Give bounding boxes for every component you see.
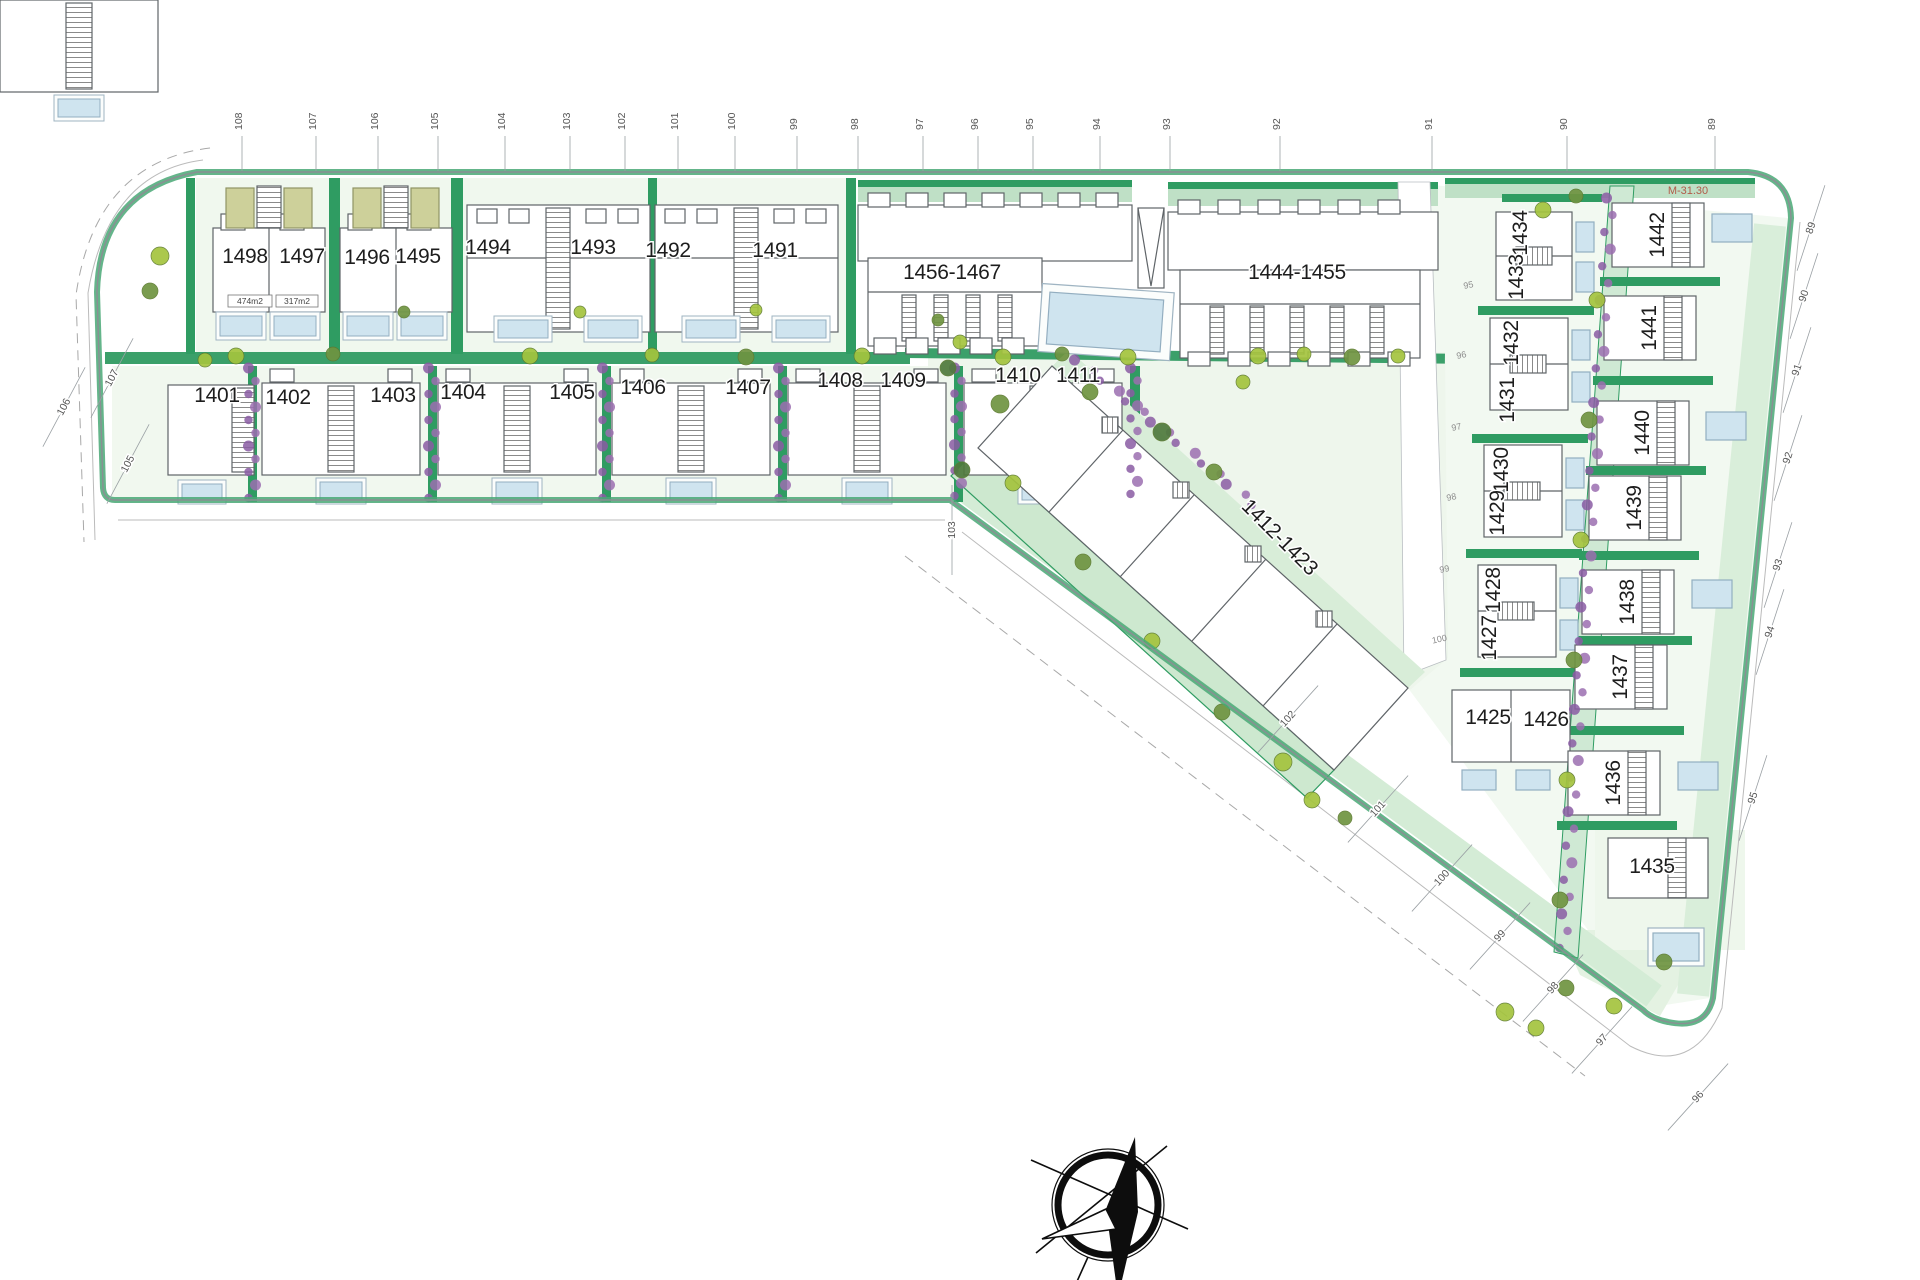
tick-label: 89 xyxy=(1803,220,1818,235)
tick-label: 106 xyxy=(55,396,74,417)
tick-label: 94 xyxy=(1762,624,1777,639)
shrub xyxy=(1585,586,1593,594)
shrub xyxy=(1582,499,1593,510)
tick-label: 90 xyxy=(1796,288,1811,303)
shrub xyxy=(1121,397,1129,405)
plot-label-1442: 1442 xyxy=(1646,212,1669,258)
shrub xyxy=(1587,432,1595,440)
plot-label-1492: 1492 xyxy=(645,239,691,262)
site-plan-page: 1081071061051041031021011009998979695949… xyxy=(0,0,1920,1280)
shrub xyxy=(431,429,439,437)
shrub xyxy=(250,402,261,413)
tree-icon xyxy=(1304,792,1320,808)
tree-icon xyxy=(954,462,970,478)
shrub xyxy=(1578,688,1586,696)
plot-label-1408: 1408 xyxy=(817,369,863,392)
shrub xyxy=(950,389,958,397)
tree-icon xyxy=(574,306,586,318)
plot-label-1431: 1431 xyxy=(1496,377,1519,423)
shrub xyxy=(1576,722,1584,730)
plot-label-1456-1467: 1456-1467 xyxy=(903,261,1001,284)
tree-icon xyxy=(1338,811,1352,825)
shrub xyxy=(1602,313,1610,321)
shrub xyxy=(431,377,439,385)
plot-label-1403: 1403 xyxy=(370,384,416,407)
plot-label-1425: 1425 xyxy=(1465,706,1511,729)
tick-label: 95 xyxy=(1745,790,1760,805)
shrub xyxy=(1601,193,1612,204)
shrub xyxy=(1592,448,1603,459)
tree-icon xyxy=(1274,753,1292,771)
tick-label: 105 xyxy=(429,112,441,130)
tree-icon xyxy=(198,353,212,367)
shrub xyxy=(1575,637,1583,645)
shrub xyxy=(244,416,252,424)
plot-label-1429: 1429 xyxy=(1486,490,1509,536)
plot-label-1430: 1430 xyxy=(1490,447,1513,493)
shrub xyxy=(1562,842,1570,850)
area-label-317: 317m2 xyxy=(284,296,310,306)
plot-label-1441: 1441 xyxy=(1638,305,1661,351)
shrub xyxy=(604,480,615,491)
shrub xyxy=(1221,479,1232,490)
tree-icon xyxy=(151,247,169,265)
road-station-label: 96 xyxy=(1455,349,1467,361)
road-station-label: 95 xyxy=(1462,279,1474,291)
tick-label: 95 xyxy=(1024,118,1036,130)
shrub xyxy=(780,402,791,413)
shrub xyxy=(1583,620,1591,628)
shrub xyxy=(423,363,434,374)
shrub xyxy=(1566,857,1577,868)
shrub xyxy=(1126,465,1134,473)
shrub xyxy=(1126,414,1134,422)
plot-label-1426: 1426 xyxy=(1523,708,1569,731)
shrub xyxy=(1114,386,1125,397)
tick-label: 97 xyxy=(1594,1032,1611,1049)
tree-icon xyxy=(398,306,410,318)
shrub xyxy=(597,441,608,452)
shrub xyxy=(773,363,784,374)
shrub xyxy=(1598,346,1609,357)
villa-pair-building xyxy=(0,0,158,121)
tree-icon xyxy=(1391,349,1405,363)
north-arrow-icon xyxy=(1031,1137,1188,1280)
tick-label: 94 xyxy=(1091,118,1103,130)
tree-icon xyxy=(326,347,340,361)
shrub xyxy=(950,415,958,423)
shrub xyxy=(1141,408,1149,416)
plot-label-1439: 1439 xyxy=(1623,485,1646,531)
tree-icon xyxy=(1581,412,1597,428)
shrub xyxy=(781,455,789,463)
shrub xyxy=(431,455,439,463)
tick-label: 98 xyxy=(849,118,861,130)
road-station-label: 97 xyxy=(1450,421,1462,433)
tick-label: 89 xyxy=(1706,118,1718,130)
shrub xyxy=(956,478,967,489)
plot-label-1434: 1434 xyxy=(1509,210,1532,256)
area-label-474: 474m2 xyxy=(237,296,263,306)
shrub xyxy=(780,480,791,491)
shrub xyxy=(605,377,613,385)
plot-label-1496: 1496 xyxy=(344,246,390,269)
plot-label-1498: 1498 xyxy=(222,245,268,268)
shrub xyxy=(1604,279,1612,287)
shrub xyxy=(1594,330,1602,338)
plot-label-1411: 1411 xyxy=(1056,364,1100,387)
tree-icon xyxy=(932,314,944,326)
plot-label-1433: 1433 xyxy=(1505,254,1528,300)
plot-label-1402: 1402 xyxy=(265,386,311,409)
shrub xyxy=(251,377,259,385)
shrub xyxy=(598,416,606,424)
tree-icon xyxy=(995,349,1011,365)
villa-pair-building xyxy=(467,205,650,342)
tree-icon xyxy=(228,348,244,364)
tree-icon xyxy=(1055,347,1069,361)
road-station-label: 99 xyxy=(1438,563,1450,575)
shrub xyxy=(1560,876,1568,884)
tick-label: 92 xyxy=(1271,118,1283,130)
shrub xyxy=(604,402,615,413)
shrub xyxy=(774,416,782,424)
shrub xyxy=(773,441,784,452)
shrub xyxy=(1572,671,1580,679)
plot-label-1437: 1437 xyxy=(1609,654,1632,700)
shrub xyxy=(605,429,613,437)
shrub xyxy=(423,441,434,452)
shrub xyxy=(244,468,252,476)
shrub xyxy=(956,401,967,412)
shrub xyxy=(1563,927,1571,935)
tick-label: 93 xyxy=(1770,557,1785,572)
tree-icon xyxy=(645,348,659,362)
tree-icon xyxy=(1589,292,1605,308)
tree-icon xyxy=(1297,347,1311,361)
plot-label-1407: 1407 xyxy=(725,376,771,399)
tree-icon xyxy=(1120,349,1136,365)
plot-label-1491: 1491 xyxy=(752,239,798,262)
shrub xyxy=(1133,427,1141,435)
shrub xyxy=(1575,602,1586,613)
shrub xyxy=(1598,262,1606,270)
tree-icon xyxy=(1566,652,1582,668)
shrub xyxy=(781,377,789,385)
shrub xyxy=(1171,439,1179,447)
plot-label-1440: 1440 xyxy=(1631,410,1654,456)
tree-icon xyxy=(1250,348,1266,364)
tick-label: 101 xyxy=(669,112,681,130)
shrub xyxy=(1145,417,1156,428)
shrub xyxy=(598,390,606,398)
tick-label: 91 xyxy=(1789,362,1804,377)
tick-label: 97 xyxy=(914,118,926,130)
tree-icon xyxy=(1606,998,1622,1014)
shrub xyxy=(1586,550,1597,561)
tick-label: 93 xyxy=(1161,118,1173,130)
shrub xyxy=(1589,518,1597,526)
plot-label-1401: 1401 xyxy=(194,384,240,407)
shrub xyxy=(781,429,789,437)
shrub xyxy=(1570,824,1578,832)
plot-label-1406: 1406 xyxy=(620,376,666,399)
tree-icon xyxy=(854,348,870,364)
tick-label: 103 xyxy=(561,112,573,130)
tree-icon xyxy=(1236,375,1250,389)
tick-label: 108 xyxy=(233,112,245,130)
shrub xyxy=(244,390,252,398)
shrub xyxy=(1591,484,1599,492)
shrub xyxy=(243,441,254,452)
tick-label: 107 xyxy=(307,112,319,130)
tree-icon xyxy=(1206,464,1222,480)
shrub xyxy=(430,480,441,491)
shrub xyxy=(774,468,782,476)
shrub xyxy=(250,480,261,491)
tree-icon xyxy=(991,395,1009,413)
shrub xyxy=(1132,476,1143,487)
shrub xyxy=(424,468,432,476)
tree-icon xyxy=(953,335,967,349)
tick-label: 100 xyxy=(726,112,738,130)
plot-label-1444-1455: 1444-1455 xyxy=(1248,261,1346,284)
plot-label-1404: 1404 xyxy=(440,381,486,404)
shrub xyxy=(1563,806,1574,817)
shrub xyxy=(251,429,259,437)
shrub xyxy=(1585,467,1593,475)
plot-label-1405: 1405 xyxy=(549,381,595,404)
tick-label: 92 xyxy=(1780,450,1795,465)
shrub xyxy=(1608,211,1616,219)
tree-icon xyxy=(1535,202,1551,218)
shrub xyxy=(1126,490,1134,498)
tree-icon xyxy=(1344,349,1360,365)
shrub xyxy=(424,390,432,398)
tree-icon xyxy=(1569,189,1583,203)
tree-icon xyxy=(1528,1020,1544,1036)
tick-label: 96 xyxy=(969,118,981,130)
tick-label: 103 xyxy=(946,521,958,539)
tick-label: 90 xyxy=(1558,118,1570,130)
shrub xyxy=(1579,569,1587,577)
shrub xyxy=(957,377,965,385)
plot-label-1436: 1436 xyxy=(1602,760,1625,806)
shrub xyxy=(1588,397,1599,408)
shrub xyxy=(1190,448,1201,459)
tick-label: 106 xyxy=(369,112,381,130)
tree-icon xyxy=(1153,423,1171,441)
tree-icon xyxy=(1075,554,1091,570)
shrub xyxy=(1242,490,1250,498)
shrub xyxy=(1197,459,1205,467)
shrub xyxy=(1125,438,1136,449)
plot-label-1493: 1493 xyxy=(570,236,616,259)
plot-label-1427: 1427 xyxy=(1478,615,1501,661)
shrub xyxy=(1568,739,1576,747)
villa-pair-building xyxy=(655,205,838,342)
plot-label-1494: 1494 xyxy=(465,236,511,259)
shrub xyxy=(1573,755,1584,766)
shrub xyxy=(1592,364,1600,372)
shrub xyxy=(243,363,254,374)
shrub xyxy=(597,363,608,374)
shrub xyxy=(1605,244,1616,255)
tree-icon xyxy=(522,348,538,364)
road-reference-label: M-31.30 xyxy=(1668,185,1708,197)
tree-icon xyxy=(1559,772,1575,788)
shrub xyxy=(251,455,259,463)
shrub xyxy=(1572,790,1580,798)
tree-icon xyxy=(750,304,762,316)
tree-icon xyxy=(1005,475,1021,491)
plot-label-1409: 1409 xyxy=(880,369,926,392)
tree-icon xyxy=(738,349,754,365)
tick-label: 104 xyxy=(496,112,508,130)
tree-icon xyxy=(1573,532,1589,548)
plot-label-1497: 1497 xyxy=(279,245,325,268)
shrub xyxy=(424,416,432,424)
tick-label: 96 xyxy=(1690,1089,1707,1106)
road-station-label: 98 xyxy=(1445,491,1457,503)
tick-label: 91 xyxy=(1423,118,1435,130)
plot-label-1432: 1432 xyxy=(1500,320,1523,366)
site-plan: 1081071061051041031021011009998979695949… xyxy=(0,0,1920,1280)
shrub xyxy=(605,455,613,463)
shrub xyxy=(1598,381,1606,389)
shrub xyxy=(1569,704,1580,715)
tree-icon xyxy=(940,360,956,376)
shrub xyxy=(1556,908,1567,919)
tree-icon xyxy=(142,283,158,299)
shrub xyxy=(1133,452,1141,460)
tick-label: 102 xyxy=(616,112,628,130)
ramp xyxy=(1138,208,1164,288)
shrub xyxy=(949,439,960,450)
shrub xyxy=(1126,389,1134,397)
tree-icon xyxy=(1656,954,1672,970)
plot-label-1495: 1495 xyxy=(395,245,441,268)
shrub xyxy=(598,468,606,476)
tree-icon xyxy=(1552,892,1568,908)
shrub xyxy=(1600,228,1608,236)
plot-label-1435: 1435 xyxy=(1629,855,1675,878)
plot-label-1438: 1438 xyxy=(1616,579,1639,625)
plot-label-1428: 1428 xyxy=(1482,567,1505,613)
shrub xyxy=(957,453,965,461)
tree-icon xyxy=(1496,1003,1514,1021)
shrub xyxy=(774,390,782,398)
plot-label-1410: 1410 xyxy=(995,364,1041,387)
shrub xyxy=(957,428,965,436)
tick-label: 99 xyxy=(788,118,800,130)
shrub xyxy=(1133,376,1141,384)
